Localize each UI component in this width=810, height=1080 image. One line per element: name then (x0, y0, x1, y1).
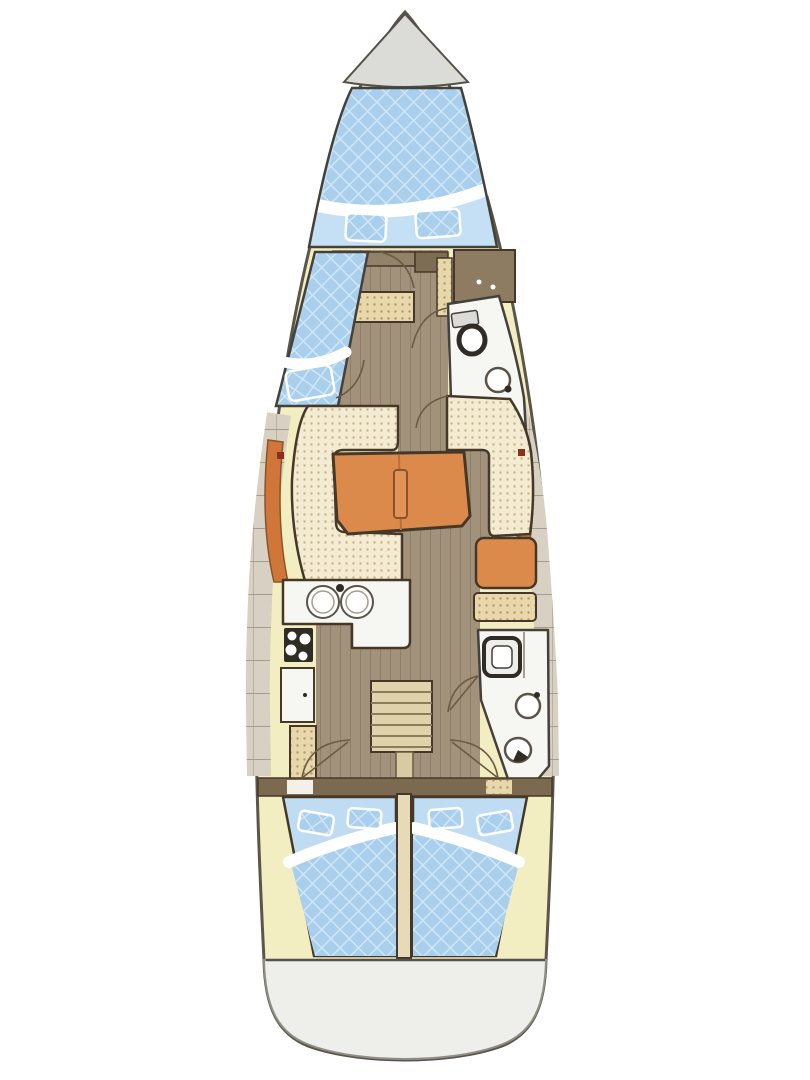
nav-station (474, 538, 536, 621)
anchor-locker (344, 14, 468, 87)
aft-bulkhead-door-starboard (486, 780, 512, 794)
v-berth-forward-cabin (309, 88, 497, 247)
aft-head-faucet (534, 692, 540, 698)
galley-fridge (281, 668, 314, 722)
stove-burner-1 (288, 632, 297, 641)
stove-burner-2 (300, 634, 311, 645)
v-berth-seat-cushion-port (345, 213, 386, 242)
stove-burner-3 (286, 645, 297, 656)
transom-platform (264, 960, 546, 1059)
aft-cabin-starboard-pillow-2 (477, 810, 514, 836)
nav-seat (474, 593, 536, 621)
wardrobe-knob-1 (477, 280, 482, 285)
aft-cabin-starboard-pillow-1 (428, 808, 462, 829)
forward-toilet (459, 326, 485, 354)
port-red-marker (277, 452, 284, 459)
transom-swim-platform (264, 960, 546, 1059)
fridge-handle (303, 693, 307, 697)
aft-cabin-port-pillow-2 (347, 808, 381, 829)
saloon-table-handle (394, 470, 407, 518)
galley-stove (284, 628, 313, 662)
yacht-deck-plan (0, 0, 810, 1080)
forward-sink-faucet (505, 386, 512, 393)
port-berth-foot-cushion (285, 364, 336, 402)
shower-tray-inner (492, 646, 512, 668)
aft-cabin-divider (397, 794, 411, 958)
aft-cabin-port-pillow-1 (298, 810, 335, 836)
nav-desk (476, 538, 536, 588)
aft-bulkhead-door-port (287, 780, 313, 794)
stove-burner-4 (299, 652, 308, 661)
starboard-red-marker (518, 449, 525, 456)
v-berth-seat-cushion-starboard (415, 208, 461, 238)
galley-faucet (336, 584, 344, 592)
wardrobe-knob-2 (491, 285, 496, 290)
wardrobe-cabinet (454, 250, 515, 302)
